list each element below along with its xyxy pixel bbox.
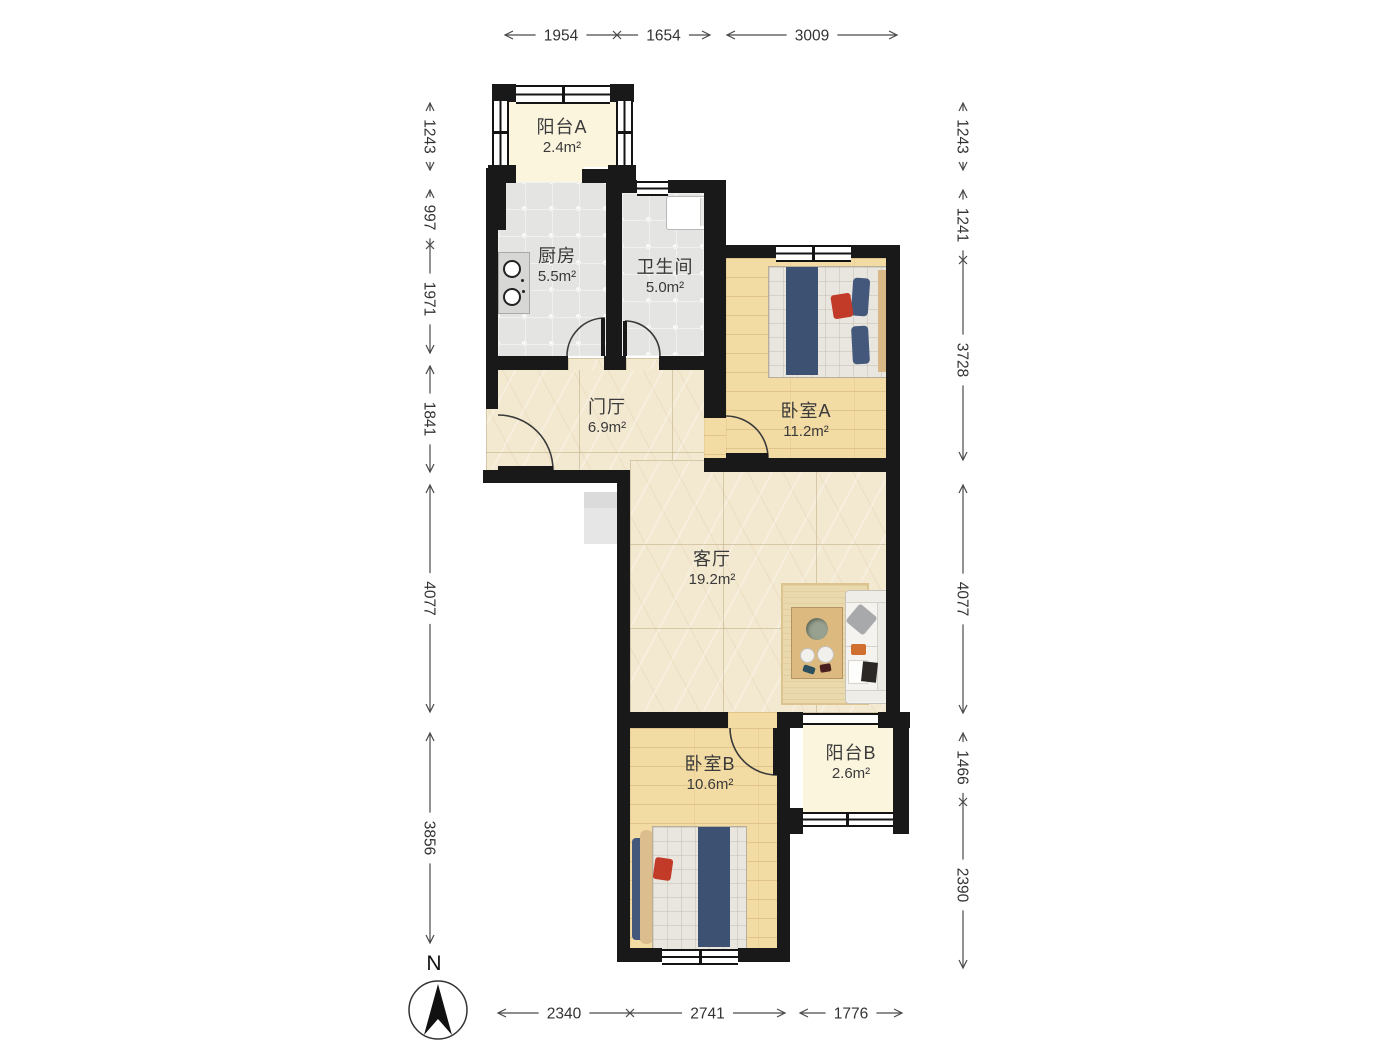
room-label-foyer: 门厅 6.9m² — [588, 396, 626, 437]
wall — [486, 168, 506, 230]
wall — [582, 169, 612, 183]
svg-text:1776: 1776 — [834, 1005, 868, 1022]
plant — [806, 618, 828, 640]
balcony-a-threshold — [516, 165, 584, 183]
svg-text:3009: 3009 — [795, 27, 829, 44]
balcony-b-window — [803, 812, 893, 827]
window-mullion — [618, 131, 631, 134]
wall — [878, 712, 910, 728]
svg-text:1466: 1466 — [954, 750, 971, 784]
bathroom-window — [637, 181, 668, 196]
compass-circle — [409, 981, 467, 1039]
room-label-bedroom-b: 卧室B 10.6m² — [684, 753, 735, 794]
window-mullion — [562, 87, 565, 102]
wall — [777, 712, 803, 728]
wall — [777, 728, 790, 962]
svg-text:2390: 2390 — [954, 868, 971, 903]
wall — [617, 712, 728, 728]
wall — [610, 84, 634, 102]
wall — [604, 356, 626, 370]
room-name: 卫生间 — [637, 256, 694, 279]
sofa-item-dark — [861, 661, 878, 682]
room-area: 10.6m² — [684, 776, 735, 795]
stove-burner — [503, 288, 521, 306]
wall — [704, 458, 900, 472]
svg-text:1971: 1971 — [421, 282, 438, 316]
room-area: 5.0m² — [637, 279, 694, 298]
bathroom-door-gap — [626, 358, 659, 370]
bedroom-a-door-gap — [704, 416, 726, 460]
stove-knob — [521, 279, 524, 282]
compass-needle — [424, 984, 452, 1035]
room-area: 11.2m² — [780, 423, 831, 442]
cup — [817, 646, 834, 663]
bed-a-accent-pillow — [830, 293, 854, 320]
wall — [738, 948, 790, 962]
room-name: 卧室A — [780, 400, 831, 423]
wall — [486, 228, 498, 358]
bed-a-pillow — [851, 326, 870, 365]
kitchen-door-gap — [568, 358, 604, 370]
bed-b-accent-pillow — [653, 857, 674, 881]
balcony-b-sill — [803, 713, 878, 725]
wall — [777, 808, 803, 834]
wall — [622, 180, 637, 193]
wall — [659, 356, 705, 370]
wall — [486, 356, 498, 409]
room-area: 2.6m² — [825, 765, 876, 784]
room-area: 5.5m² — [538, 268, 576, 287]
sofa-armrest — [846, 690, 886, 702]
compass — [409, 981, 467, 1039]
wall — [886, 245, 900, 715]
room-area: 2.4m² — [536, 139, 587, 158]
svg-text:997: 997 — [421, 205, 438, 231]
wall — [893, 728, 909, 810]
bedroom-a-window — [776, 245, 851, 262]
bedroom-b-window — [662, 949, 738, 965]
svg-text:1841: 1841 — [421, 402, 438, 436]
room-label-balcony-a: 阳台A 2.4m² — [536, 116, 587, 157]
svg-text:3728: 3728 — [954, 343, 971, 377]
bed-a-headboard — [878, 270, 886, 372]
stove-knob — [522, 290, 525, 293]
svg-text:1654: 1654 — [646, 27, 681, 44]
floorplan-canvas: 阳台A 2.4m² 厨房 5.5m² 卫生间 5.0m² 门厅 6.9m² 卧室… — [0, 0, 1400, 1050]
svg-text:1243: 1243 — [421, 119, 438, 153]
wall — [617, 712, 630, 962]
bedroom-b-door-gap — [728, 712, 777, 728]
window-mullion — [494, 131, 507, 134]
balcony-a-right-window — [616, 101, 633, 165]
room-label-living-room: 客厅 19.2m² — [689, 548, 736, 589]
stove-burner — [503, 260, 521, 278]
balcony-a-left-window — [492, 101, 509, 165]
room-name: 厨房 — [538, 245, 576, 268]
room-name: 阳台A — [536, 116, 587, 139]
wall — [726, 245, 776, 258]
compass-north-label: N — [426, 952, 441, 976]
svg-text:1243: 1243 — [954, 119, 971, 153]
svg-text:1241: 1241 — [954, 208, 971, 242]
wall — [606, 182, 622, 358]
wall — [893, 808, 909, 834]
cup — [800, 648, 815, 663]
window-mullion — [846, 814, 849, 825]
room-label-kitchen: 厨房 5.5m² — [538, 245, 576, 286]
room-label-bathroom: 卫生间 5.0m² — [637, 256, 694, 297]
svg-text:4077: 4077 — [421, 581, 438, 615]
bed-b-blanket — [698, 827, 730, 947]
sofa-item-orange — [851, 644, 866, 655]
svg-text:2741: 2741 — [690, 1005, 724, 1022]
svg-text:4077: 4077 — [954, 582, 971, 616]
room-name: 门厅 — [588, 396, 626, 419]
window-mullion — [699, 951, 702, 963]
bed-a-pillow — [851, 277, 871, 316]
wall — [486, 356, 568, 370]
wall — [617, 483, 630, 715]
wall — [704, 180, 726, 418]
bed-a-blanket — [786, 267, 818, 375]
room-label-bedroom-a: 卧室A 11.2m² — [780, 400, 831, 441]
room-area: 6.9m² — [588, 419, 626, 438]
room-name: 客厅 — [689, 548, 736, 571]
svg-text:1954: 1954 — [544, 27, 579, 44]
svg-text:3856: 3856 — [421, 821, 438, 855]
wall — [483, 470, 630, 483]
wall — [492, 84, 516, 102]
room-area: 19.2m² — [689, 571, 736, 590]
svg-text:2340: 2340 — [547, 1005, 582, 1022]
wall — [617, 948, 662, 962]
sofa-armrest — [846, 591, 886, 603]
balcony-a-top-window — [516, 85, 610, 104]
window-mullion — [812, 247, 815, 260]
room-label-balcony-b: 阳台B 2.6m² — [825, 742, 876, 783]
room-name: 阳台B — [825, 742, 876, 765]
room-name: 卧室B — [684, 753, 735, 776]
